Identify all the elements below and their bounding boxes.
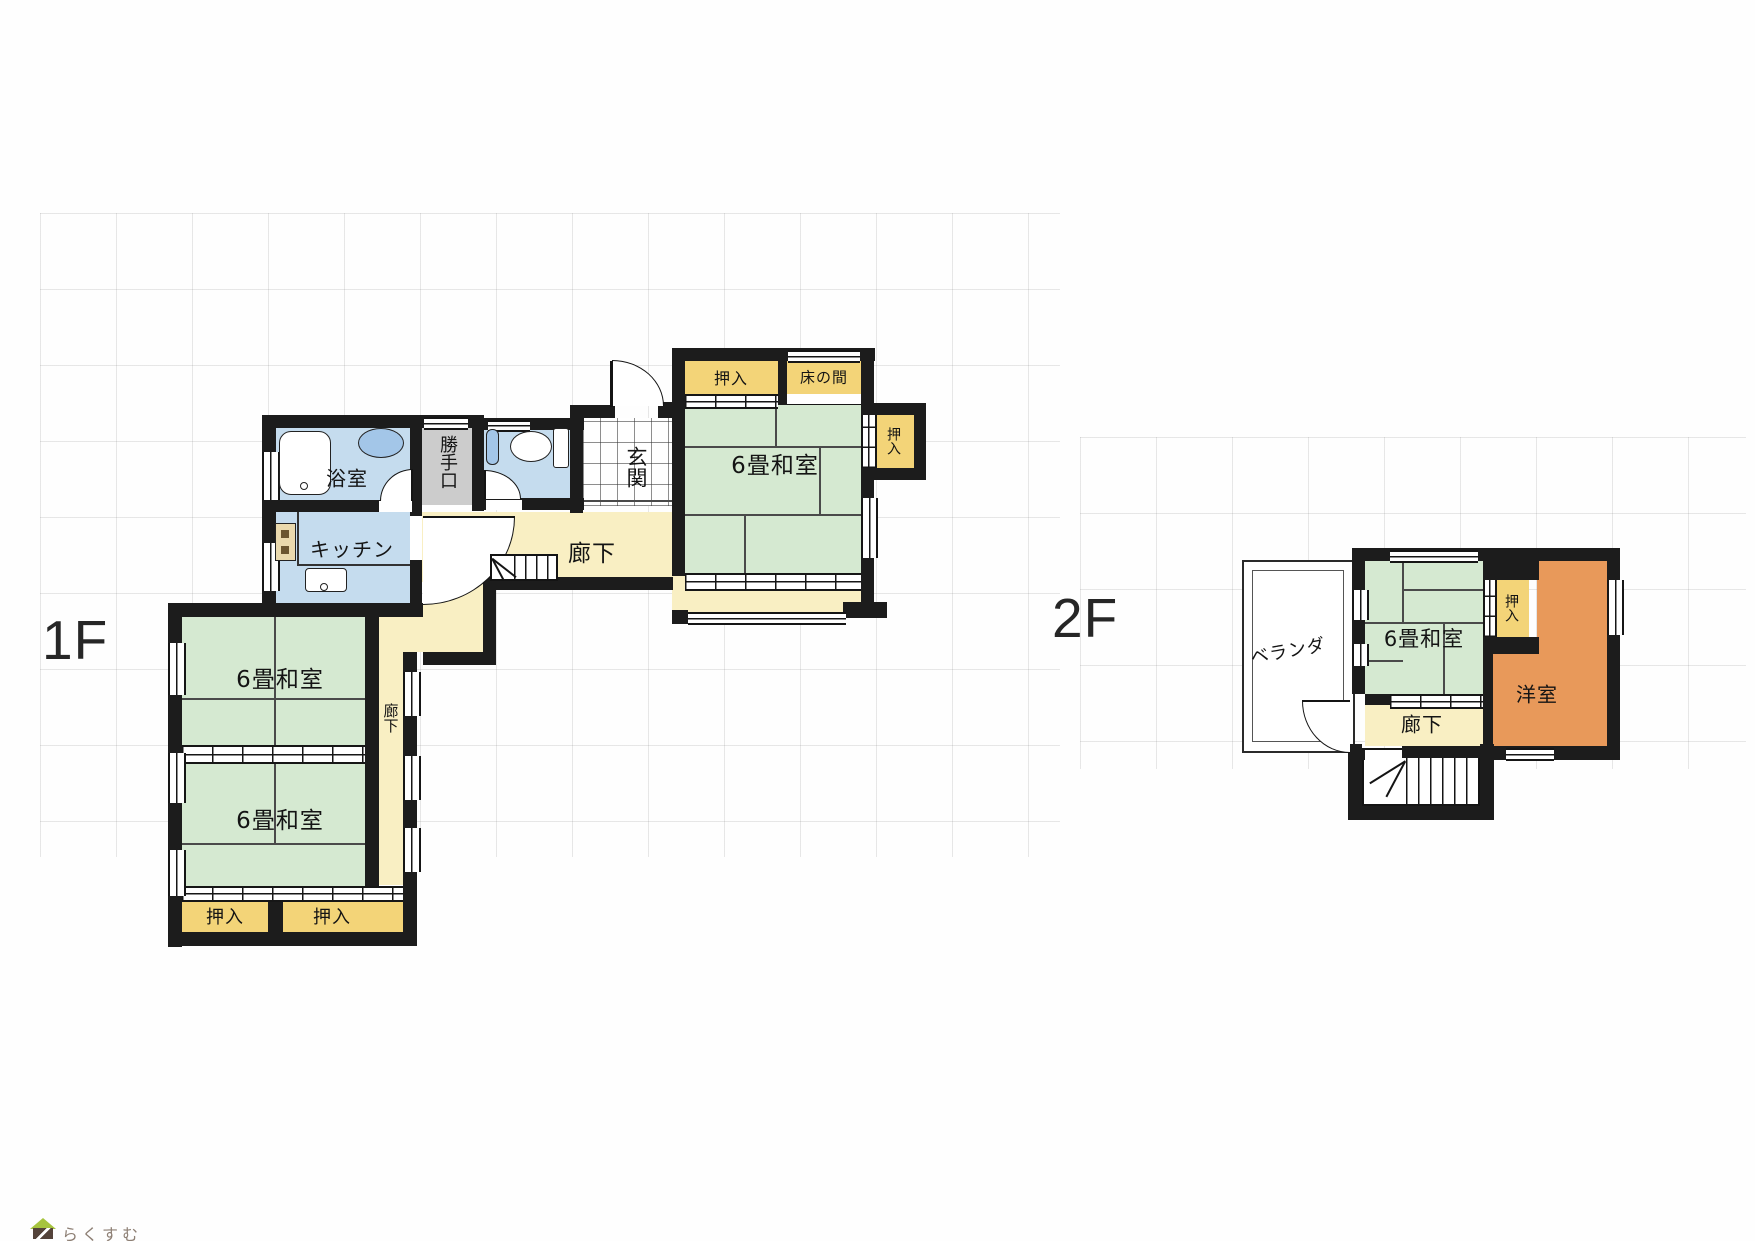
room-label-backdoor: 勝手口 (434, 435, 460, 489)
room-tatami-main (685, 405, 861, 573)
tatami-line (685, 514, 861, 516)
wall (570, 405, 583, 513)
tatami-line (819, 448, 821, 514)
window (403, 756, 421, 800)
kitchen-faucet (320, 583, 328, 591)
room-label-hall: 廊下 (568, 534, 616, 568)
wall (1483, 637, 1539, 654)
tatami-line (182, 698, 365, 700)
window (262, 452, 280, 500)
wall (365, 617, 379, 746)
tatami-line (1402, 561, 1404, 623)
tatami-line (1402, 589, 1483, 591)
bath-sink (358, 428, 404, 458)
counter-line (297, 564, 410, 566)
wall (472, 415, 484, 511)
floor-label-1f: 1F (42, 608, 108, 672)
stove-burner (281, 546, 289, 554)
door-gap (486, 500, 522, 510)
shoji (685, 573, 861, 591)
wall (1483, 561, 1539, 580)
wall (423, 652, 496, 665)
room-label-entrance: 玄関 (621, 446, 651, 488)
counter-line (297, 512, 299, 565)
wall (1348, 806, 1494, 820)
wall (861, 468, 926, 480)
window (1390, 550, 1478, 563)
stairs (490, 554, 558, 581)
tatami-line (744, 516, 746, 573)
wall (1483, 654, 1493, 746)
logo-text: らくすむ (62, 1221, 142, 1241)
door-gap (379, 501, 412, 512)
fusuma (182, 886, 403, 902)
stair-treads (514, 556, 558, 579)
shoji (1390, 694, 1483, 709)
wall (1480, 744, 1494, 820)
room-label-closet-br: 押入 (313, 903, 351, 929)
window (168, 850, 186, 896)
wall (483, 580, 496, 660)
wall (672, 348, 685, 576)
tatami-line (182, 843, 365, 845)
wall (843, 602, 887, 618)
logo-house-body-icon (33, 1228, 53, 1239)
wall (168, 603, 423, 617)
fusuma (182, 745, 365, 764)
wc-door-leaf (484, 470, 486, 499)
stair-diagonal (1370, 761, 1406, 785)
toilet-bowl (510, 431, 552, 462)
window (788, 350, 860, 363)
wc-sink (486, 429, 499, 465)
room-label-tatami-2f: 6畳和室 (1384, 623, 1464, 653)
room-label-tokonoma: 床の間 (800, 367, 848, 388)
entrance-step-line (583, 500, 672, 502)
tatami-line (1365, 660, 1403, 662)
tokonoma-edge (787, 394, 861, 405)
door-gap (410, 516, 422, 560)
bathtub-drain (300, 482, 308, 490)
window (1506, 748, 1554, 761)
window (1352, 644, 1369, 666)
room-label-western: 洋室 (1516, 679, 1558, 708)
window (1607, 580, 1624, 635)
stove-burner (281, 530, 289, 538)
window (168, 753, 186, 803)
tatami-line (775, 405, 777, 446)
toilet-tank (553, 428, 569, 468)
backdoor-door (424, 417, 468, 430)
room-label-closet-bl: 押入 (206, 903, 244, 929)
stair-treads (1406, 750, 1480, 804)
window (861, 498, 878, 558)
room-label-closet-2f: 押入 (1501, 594, 1521, 622)
wall (168, 932, 417, 946)
room-label-tatami-main: 6畳和室 (731, 446, 819, 480)
fusuma (1483, 580, 1497, 637)
wall (268, 898, 283, 932)
fusuma (861, 415, 877, 468)
front-door-leaf (610, 361, 613, 407)
wall (365, 746, 379, 886)
floor-label-2f: 2F (1052, 586, 1118, 650)
window (403, 672, 421, 716)
room-label-bath: 浴室 (326, 463, 368, 492)
room-label-closet-side: 押入 (883, 427, 903, 455)
hall-door-leaf (423, 516, 515, 518)
room-label-hall-side: 廊下 (381, 703, 402, 733)
room-label-hall-2f: 廊下 (1401, 709, 1443, 738)
veranda-door-leaf (1302, 700, 1350, 702)
window (1352, 590, 1369, 620)
room-label-kitchen: キッチン (310, 534, 394, 563)
wall (1352, 548, 1365, 694)
wall (1365, 694, 1392, 705)
stove (275, 523, 296, 561)
window (688, 612, 846, 625)
room-label-tatami-a: 6畳和室 (236, 660, 324, 694)
bath-door-leaf (411, 469, 413, 501)
wall (778, 361, 787, 405)
room-label-closet-top: 押入 (714, 365, 748, 389)
wall (672, 610, 688, 624)
room-western (1537, 561, 1607, 746)
window (403, 828, 421, 872)
fusuma (685, 394, 778, 409)
window (168, 643, 186, 695)
corridor-side (377, 617, 403, 885)
corridor-gap (672, 576, 685, 612)
wall (861, 348, 874, 404)
room-label-tatami-b: 6畳和室 (236, 801, 324, 835)
floorplan-canvas: 浴室 勝手口 キッチン 玄関 廊下 廊下 押入 床の間 6畳和室 押入 6畳和室… (0, 0, 1755, 1241)
